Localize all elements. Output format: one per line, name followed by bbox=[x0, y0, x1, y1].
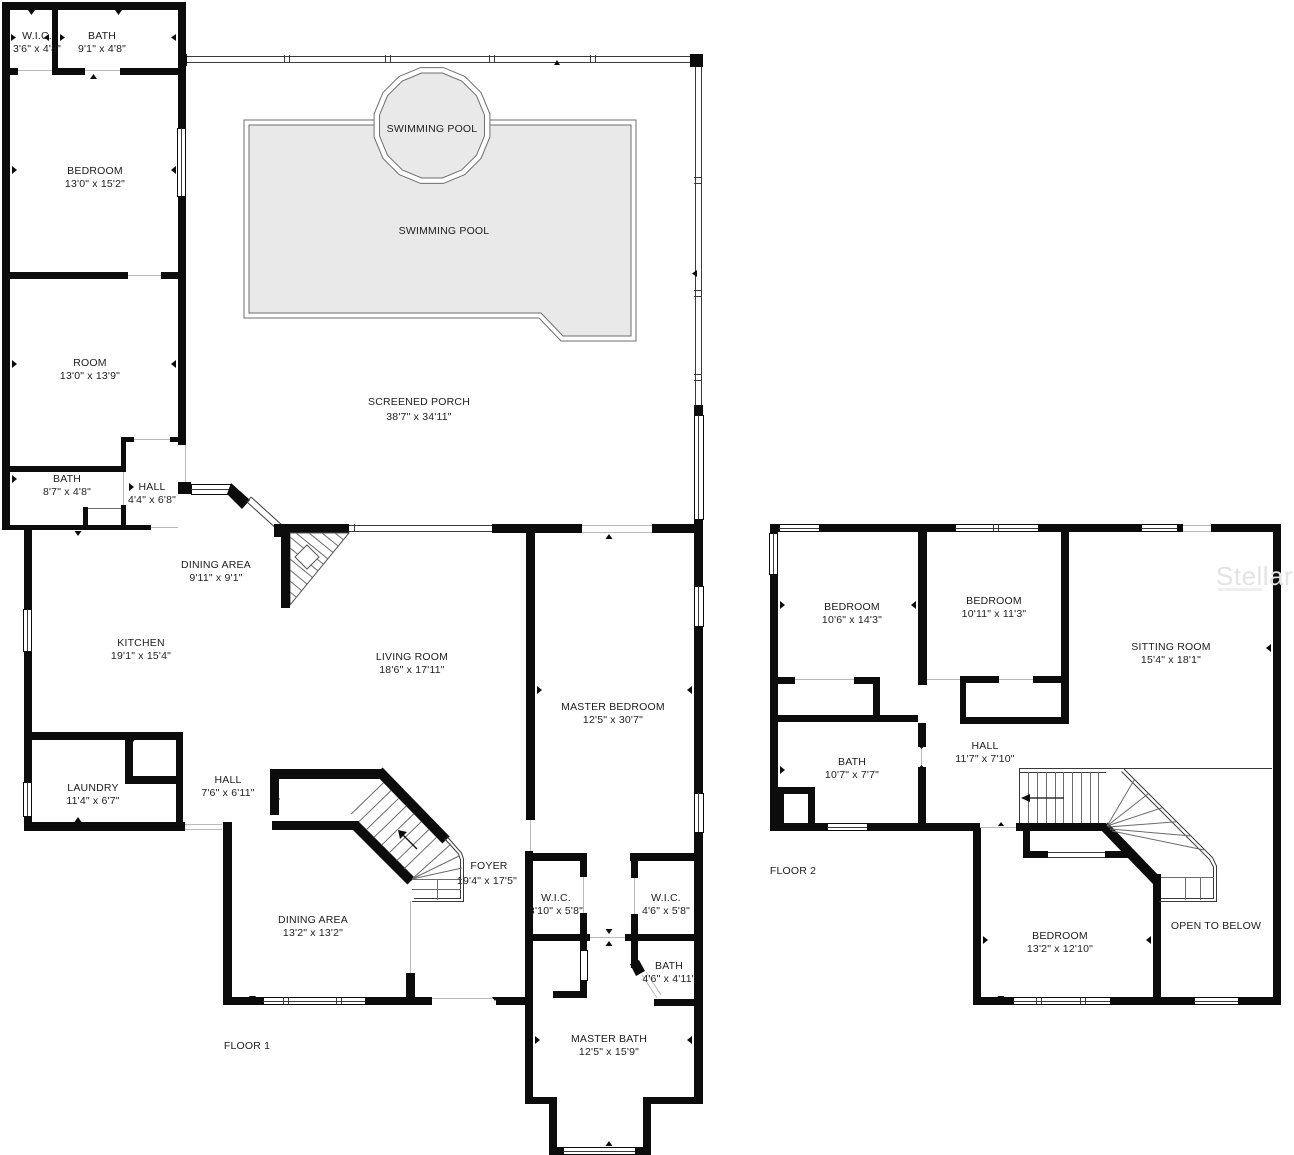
svg-text:LIVING ROOM: LIVING ROOM bbox=[376, 651, 448, 663]
svg-text:MASTER BEDROOM: MASTER BEDROOM bbox=[561, 701, 665, 713]
svg-text:8'7" x 4'8": 8'7" x 4'8" bbox=[43, 486, 91, 498]
svg-text:BEDROOM: BEDROOM bbox=[966, 595, 1022, 607]
svg-text:MASTER BATH: MASTER BATH bbox=[571, 1033, 647, 1045]
svg-text:ROOM: ROOM bbox=[73, 357, 106, 369]
svg-text:FOYER: FOYER bbox=[470, 860, 507, 872]
svg-text:10'7" x 7'7": 10'7" x 7'7" bbox=[825, 769, 879, 781]
svg-text:38'7" x 34'11": 38'7" x 34'11" bbox=[386, 411, 452, 423]
svg-text:DINING AREA: DINING AREA bbox=[181, 559, 251, 571]
svg-text:9'11" x 9'1": 9'11" x 9'1" bbox=[189, 572, 242, 584]
svg-text:15'4" x 18'1": 15'4" x 18'1" bbox=[1141, 654, 1201, 666]
svg-text:18'6" x 17'11": 18'6" x 17'11" bbox=[379, 664, 445, 676]
svg-text:SWIMMING POOL: SWIMMING POOL bbox=[387, 123, 478, 135]
svg-text:19'1" x 15'4": 19'1" x 15'4" bbox=[111, 650, 171, 662]
svg-text:11'7" x 7'10": 11'7" x 7'10" bbox=[955, 753, 1014, 765]
svg-text:BEDROOM: BEDROOM bbox=[1032, 930, 1088, 942]
svg-text:BATH: BATH bbox=[88, 30, 116, 42]
svg-text:W.I.C.: W.I.C. bbox=[541, 892, 571, 904]
svg-text:BATH: BATH bbox=[53, 473, 81, 485]
svg-text:BEDROOM: BEDROOM bbox=[824, 601, 880, 613]
svg-text:13'0" x 13'9": 13'0" x 13'9" bbox=[60, 370, 120, 382]
svg-text:HALL: HALL bbox=[214, 774, 241, 786]
svg-text:W.I.C.: W.I.C. bbox=[651, 892, 681, 904]
svg-text:12'5" x 15'9": 12'5" x 15'9" bbox=[579, 1046, 639, 1058]
svg-text:SITTING ROOM: SITTING ROOM bbox=[1131, 641, 1210, 653]
svg-text:10'6" x 14'3": 10'6" x 14'3" bbox=[822, 614, 882, 626]
svg-text:4'6" x 4'11": 4'6" x 4'11" bbox=[642, 973, 695, 985]
svg-text:W.I.C.: W.I.C. bbox=[22, 30, 52, 42]
svg-text:LAUNDRY: LAUNDRY bbox=[67, 782, 118, 794]
svg-text:HALL: HALL bbox=[971, 740, 998, 752]
svg-text:13'2" x 13'2": 13'2" x 13'2" bbox=[283, 927, 343, 939]
svg-text:13'2" x 12'10": 13'2" x 12'10" bbox=[1027, 943, 1093, 955]
svg-text:9'1" x 4'8": 9'1" x 4'8" bbox=[78, 43, 126, 55]
svg-text:OPEN TO BELOW: OPEN TO BELOW bbox=[1171, 920, 1261, 932]
svg-text:11'4" x 6'7": 11'4" x 6'7" bbox=[66, 795, 119, 807]
svg-text:BEDROOM: BEDROOM bbox=[67, 165, 123, 177]
svg-text:HALL: HALL bbox=[138, 481, 165, 493]
svg-text:KITCHEN: KITCHEN bbox=[117, 637, 165, 649]
svg-text:FLOOR 1: FLOOR 1 bbox=[224, 1040, 270, 1052]
svg-text:SCREENED PORCH: SCREENED PORCH bbox=[368, 396, 470, 408]
svg-text:12'5" x 30'7": 12'5" x 30'7" bbox=[583, 714, 643, 726]
svg-text:13'0" x 15'2": 13'0" x 15'2" bbox=[65, 178, 125, 190]
svg-text:BATH: BATH bbox=[838, 756, 866, 768]
svg-text:7'6" x 6'11": 7'6" x 6'11" bbox=[201, 787, 254, 799]
svg-text:FLOOR 2: FLOOR 2 bbox=[770, 865, 816, 877]
svg-text:3'10" x 5'8": 3'10" x 5'8" bbox=[529, 905, 583, 917]
svg-text:DINING AREA: DINING AREA bbox=[278, 914, 348, 926]
svg-text:4'6" x 5'8": 4'6" x 5'8" bbox=[642, 905, 690, 917]
svg-text:3'6" x 4'8": 3'6" x 4'8" bbox=[13, 43, 61, 55]
svg-text:10'11" x 11'3": 10'11" x 11'3" bbox=[962, 608, 1027, 620]
svg-text:StellarMLS: StellarMLS bbox=[1216, 561, 1294, 591]
svg-text:SWIMMING POOL: SWIMMING POOL bbox=[399, 225, 490, 237]
svg-text:19'4" x 17'5": 19'4" x 17'5" bbox=[457, 875, 517, 887]
svg-text:4'4" x 6'8": 4'4" x 6'8" bbox=[128, 494, 176, 506]
svg-text:BATH: BATH bbox=[655, 960, 683, 972]
